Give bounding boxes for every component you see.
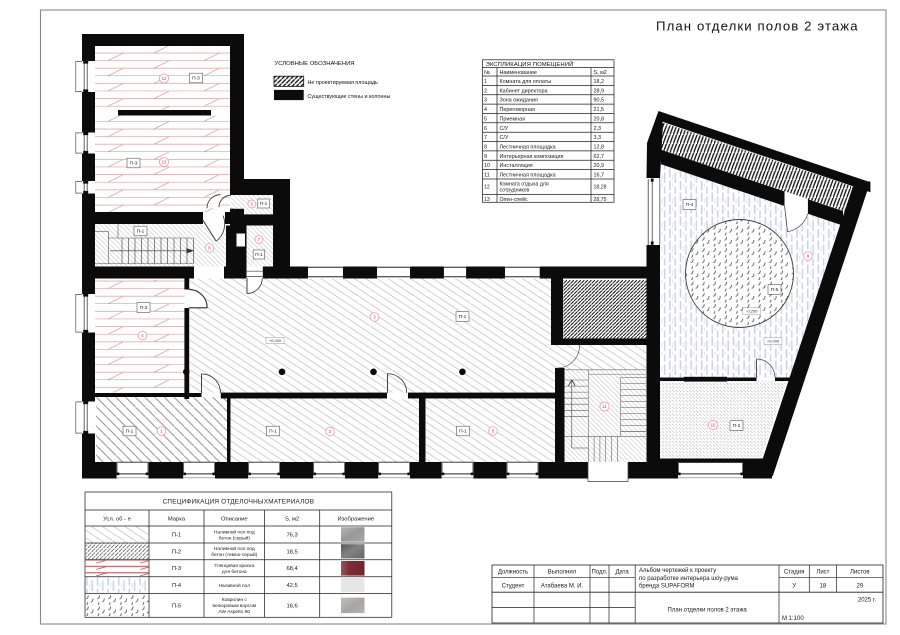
svg-text:Лестничная площадка: Лестничная площадка	[500, 173, 556, 179]
svg-text:УСЛОВНЫЕ ОБОЗНАЧЕНИЯ: УСЛОВНЫЕ ОБОЗНАЧЕНИЯ	[275, 61, 355, 67]
svg-text:Атабаева М. И.: Атабаева М. И.	[541, 584, 584, 590]
svg-text:12,8: 12,8	[594, 145, 605, 151]
svg-text:Дата: Дата	[615, 570, 629, 576]
svg-text:12: 12	[162, 76, 167, 81]
svg-text:ЭКСПЛИКАЦИЯ ПОМЕЩЕНИЙ: ЭКСПЛИКАЦИЯ ПОМЕЩЕНИЙ	[486, 60, 574, 68]
svg-text:Лестничная площадка: Лестничная площадка	[500, 145, 556, 151]
svg-text:12: 12	[484, 184, 490, 190]
svg-text:П-1: П-1	[126, 429, 134, 435]
svg-text:Комната отдыха для: Комната отдыха для	[500, 181, 549, 187]
svg-text:68,4: 68,4	[286, 566, 298, 572]
svg-text:Альбом чертежей к проекту: Альбом чертежей к проекту	[639, 567, 716, 574]
svg-text:62,7: 62,7	[594, 154, 605, 160]
svg-text:План отделки полов 2 этажа: План отделки полов 2 этажа	[656, 19, 859, 34]
svg-text:П-1: П-1	[260, 201, 268, 207]
svg-text:П-1: П-1	[269, 429, 277, 435]
svg-text:S, м2: S, м2	[594, 70, 607, 76]
svg-text:П-1: П-1	[459, 314, 467, 320]
svg-text:Комната для оплаты: Комната для оплаты	[500, 79, 552, 85]
svg-text:Существующие стены и колонны: Существующие стены и колонны	[308, 94, 391, 100]
svg-text:2,3: 2,3	[594, 126, 602, 132]
svg-text:11: 11	[484, 173, 490, 179]
svg-text:7: 7	[484, 135, 487, 141]
svg-text:+0,000: +0,000	[767, 339, 780, 344]
svg-text:42,5: 42,5	[286, 583, 297, 589]
svg-text:по разработке интерьера шоу-ру: по разработке интерьера шоу-рума	[639, 576, 739, 582]
svg-text:План отделки полов 2 этажа: План отделки полов 2 этажа	[668, 608, 748, 614]
svg-text:П-3: П-3	[172, 566, 181, 572]
svg-text:29: 29	[856, 584, 863, 590]
svg-text:3,3: 3,3	[594, 135, 602, 141]
svg-text:28,9: 28,9	[594, 88, 605, 94]
svg-text:Кабинет директора: Кабинет директора	[500, 88, 548, 94]
svg-text:№: №	[484, 70, 490, 76]
svg-text:11: 11	[602, 404, 607, 409]
svg-text:Наливной пол: Наливной пол	[219, 582, 251, 589]
svg-text:П-1: П-1	[137, 229, 145, 235]
svg-text:Зона ожидания: Зона ожидания	[500, 98, 538, 104]
svg-text:Наливной пол под: Наливной пол под	[214, 528, 255, 535]
svg-text:У: У	[792, 584, 796, 590]
svg-text:П-1: П-1	[172, 533, 181, 539]
svg-text:20,9: 20,9	[594, 163, 605, 169]
svg-text:Приемная: Приемная	[500, 116, 526, 122]
svg-text:+0,000: +0,000	[269, 338, 282, 343]
svg-text:П-3: П-3	[192, 76, 200, 82]
svg-text:13: 13	[162, 160, 167, 165]
svg-text:бренда SUPAFORM: бренда SUPAFORM	[639, 584, 695, 590]
svg-text:С/У: С/У	[500, 135, 509, 141]
svg-text:-0,250: -0,250	[746, 309, 758, 314]
svg-text:сотрудников: сотрудников	[500, 188, 530, 194]
svg-text:П-3: П-3	[140, 305, 148, 311]
svg-text:С/У: С/У	[500, 126, 509, 132]
svg-text:9: 9	[484, 154, 487, 160]
svg-text:Стадия: Стадия	[784, 570, 804, 576]
svg-text:Подп.: Подп.	[592, 570, 608, 576]
svg-text:3: 3	[484, 98, 487, 104]
svg-text:П-3: П-3	[130, 161, 138, 167]
svg-text:СПЕЦИФИКАЦИЯ ОТДЕЛОЧНЫХМАТЕРИА: СПЕЦИФИКАЦИЯ ОТДЕЛОЧНЫХМАТЕРИАЛОВ	[163, 499, 315, 506]
svg-text:2: 2	[484, 88, 487, 94]
svg-text:Не проектируемая площадь: Не проектируемая площадь	[308, 80, 379, 86]
svg-text:бетон (серый): бетон (серый)	[219, 534, 250, 541]
svg-text:Студент: Студент	[502, 584, 525, 590]
svg-text:П-1: П-1	[255, 252, 263, 258]
svg-text:1: 1	[484, 79, 487, 85]
svg-text:П-5: П-5	[771, 287, 779, 293]
svg-text:Ковролин с: Ковролин с	[222, 597, 248, 603]
svg-text:Усл. об - е: Усл. об - е	[103, 517, 131, 523]
svg-text:28,75: 28,75	[594, 197, 607, 203]
svg-text:Переговорная: Переговорная	[500, 107, 535, 113]
svg-text:5: 5	[484, 116, 487, 122]
svg-text:4: 4	[484, 107, 487, 113]
svg-text:Глянцевая краска: Глянцевая краска	[215, 563, 255, 569]
svg-text:Опен-спейс: Опен-спейс	[500, 196, 529, 203]
svg-text:Листов: Листов	[850, 570, 870, 576]
svg-text:П-4: П-4	[172, 583, 182, 589]
svg-text:Интерьерная композиция: Интерьерная композиция	[500, 154, 564, 160]
svg-text:Изображение: Изображение	[338, 517, 375, 523]
svg-text:90,5: 90,5	[594, 98, 605, 104]
svg-text:AW Aspetto 90: AW Aspetto 90	[219, 609, 251, 615]
svg-text:Должность: Должность	[498, 570, 528, 576]
svg-text:S, м2: S, м2	[285, 517, 299, 523]
svg-text:18: 18	[820, 584, 827, 590]
svg-text:8: 8	[484, 145, 487, 151]
svg-text:21,5: 21,5	[594, 107, 605, 113]
svg-text:76,3: 76,3	[286, 533, 297, 539]
svg-text:Марка: Марка	[168, 517, 186, 523]
svg-text:Инсталляция: Инсталляция	[500, 163, 533, 169]
svg-text:18,5: 18,5	[286, 549, 297, 555]
svg-text:П-2: П-2	[733, 423, 741, 429]
svg-text:20,8: 20,8	[594, 116, 605, 122]
svg-text:П-2: П-2	[172, 549, 181, 555]
svg-text:Наливной пол под: Наливной пол под	[214, 545, 255, 552]
svg-text:П-1: П-1	[459, 429, 467, 435]
svg-text:П-5: П-5	[172, 603, 181, 609]
svg-text:П-4: П-4	[686, 202, 694, 208]
svg-text:Наименование: Наименование	[500, 70, 537, 76]
svg-text:Выполнил: Выполнил	[548, 570, 577, 576]
svg-text:6: 6	[484, 126, 487, 132]
svg-text:М 1:100: М 1:100	[782, 616, 804, 622]
svg-text:18,2: 18,2	[594, 79, 605, 85]
svg-text:2025 г.: 2025 г.	[858, 598, 876, 604]
svg-text:16,7: 16,7	[594, 173, 605, 179]
svg-text:бетон (темно-серый): бетон (темно-серый)	[211, 551, 257, 558]
svg-text:13: 13	[484, 197, 490, 203]
svg-text:10: 10	[484, 163, 490, 169]
svg-text:16,6: 16,6	[286, 603, 297, 609]
svg-text:для бетона: для бетона	[222, 569, 247, 575]
svg-text:Лист: Лист	[816, 570, 829, 576]
svg-text:18,28: 18,28	[594, 184, 607, 190]
svg-text:10: 10	[711, 423, 716, 428]
svg-text:Описание: Описание	[221, 517, 248, 523]
svg-text:велюровым ворсом: велюровым ворсом	[212, 604, 256, 609]
